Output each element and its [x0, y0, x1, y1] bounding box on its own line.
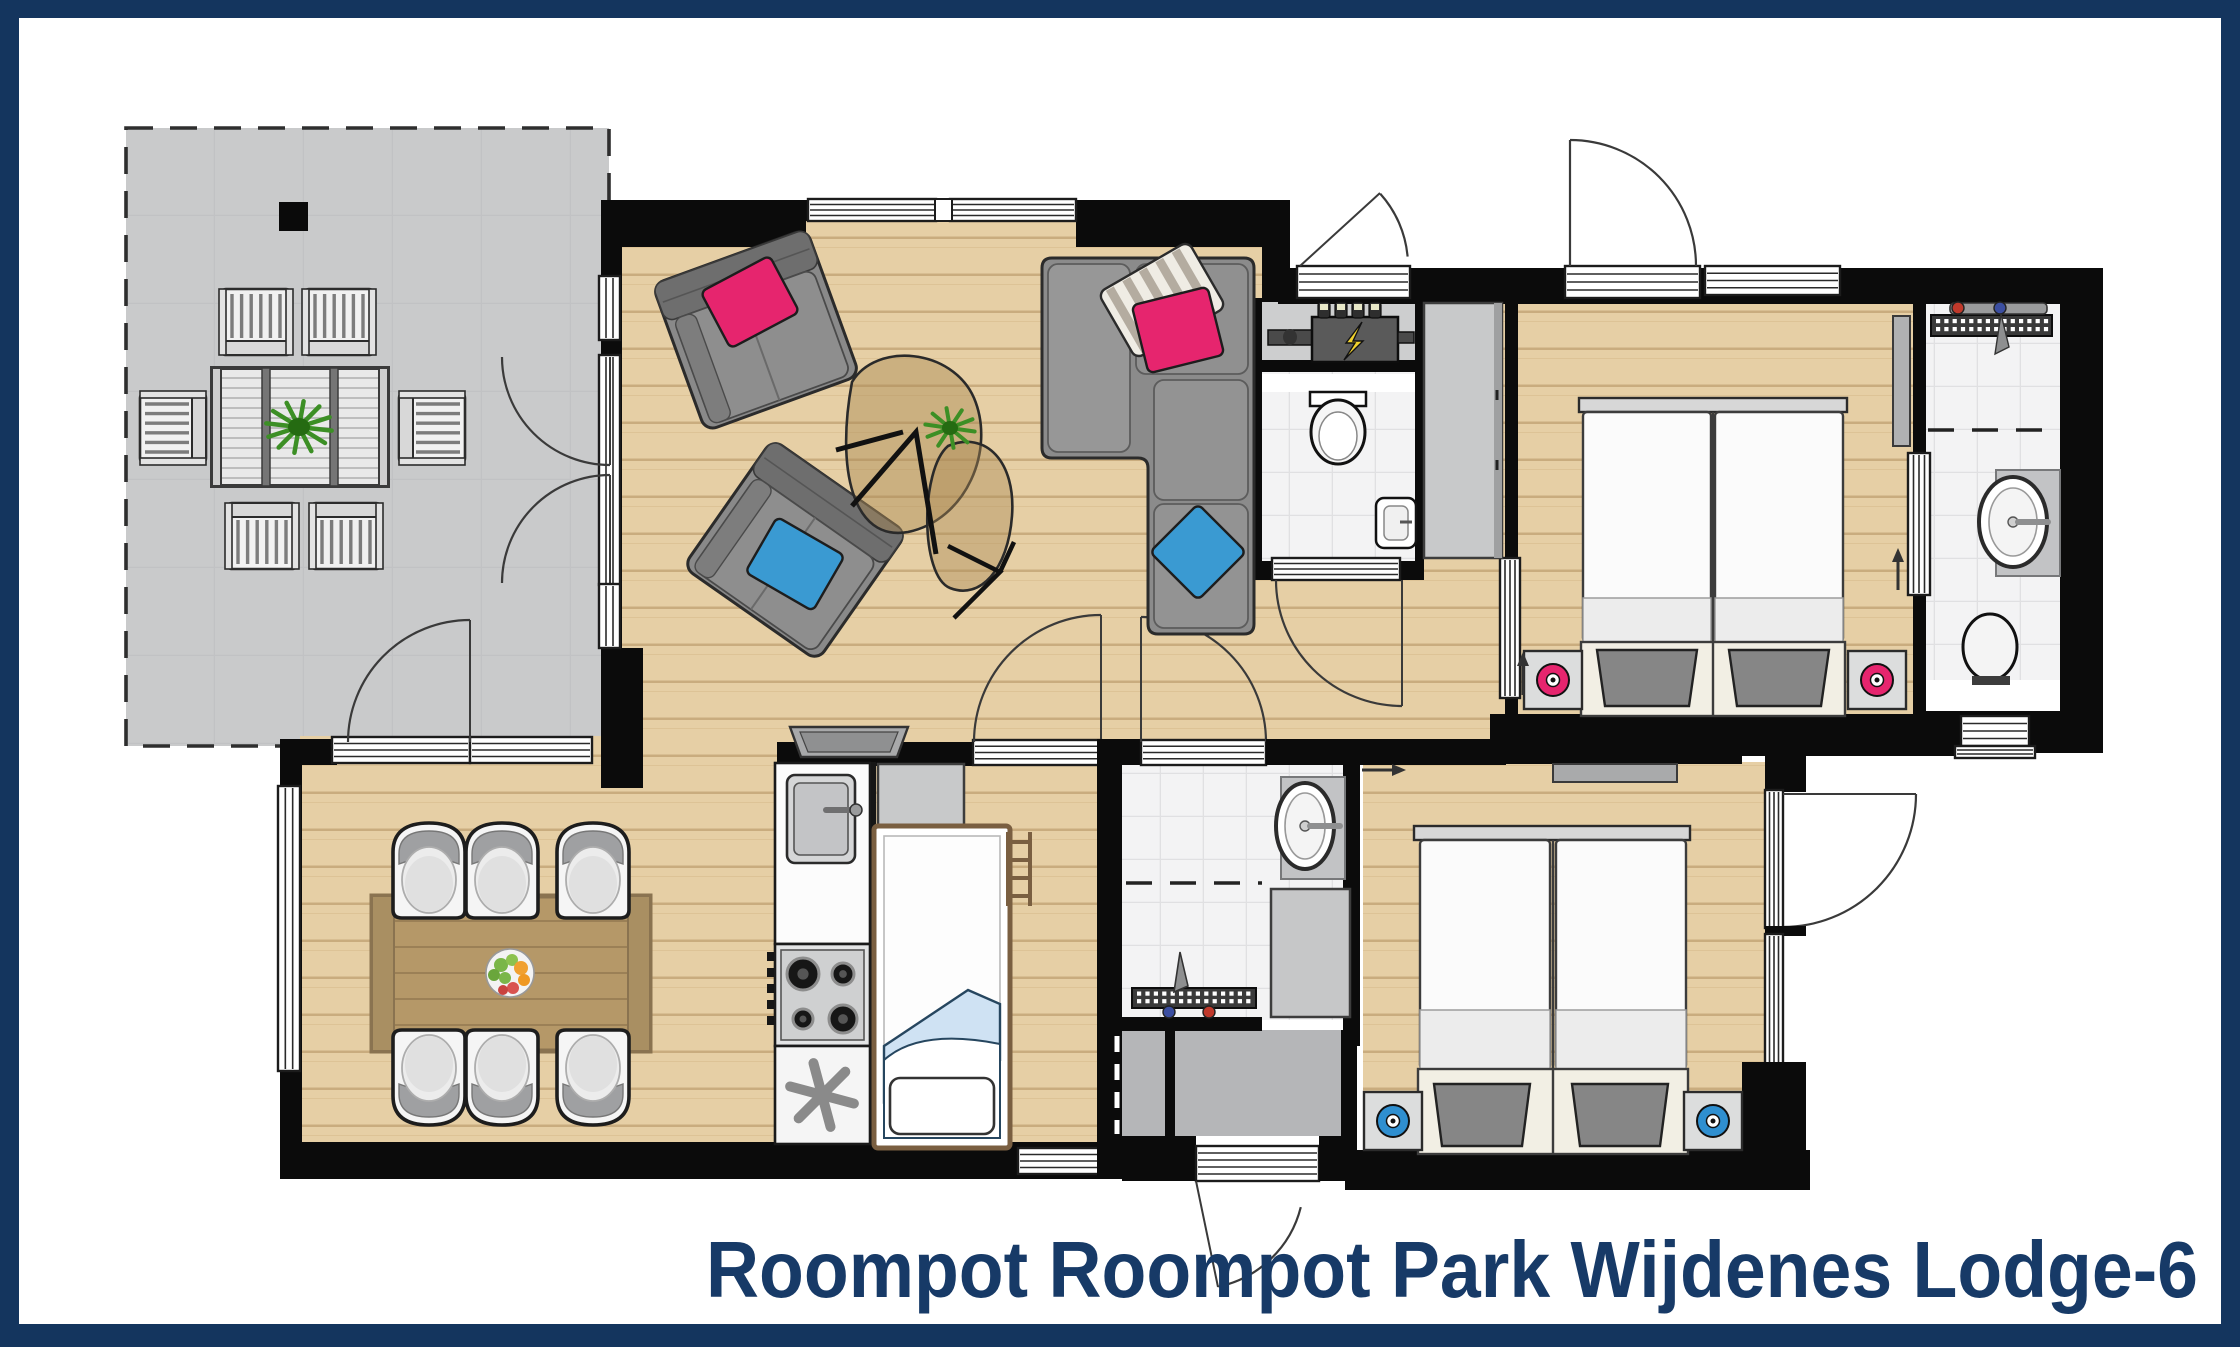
svg-text:Roompot Roompot Park Wijdenes: Roompot Roompot Park Wijdenes Lodge-6 [706, 1225, 2198, 1314]
